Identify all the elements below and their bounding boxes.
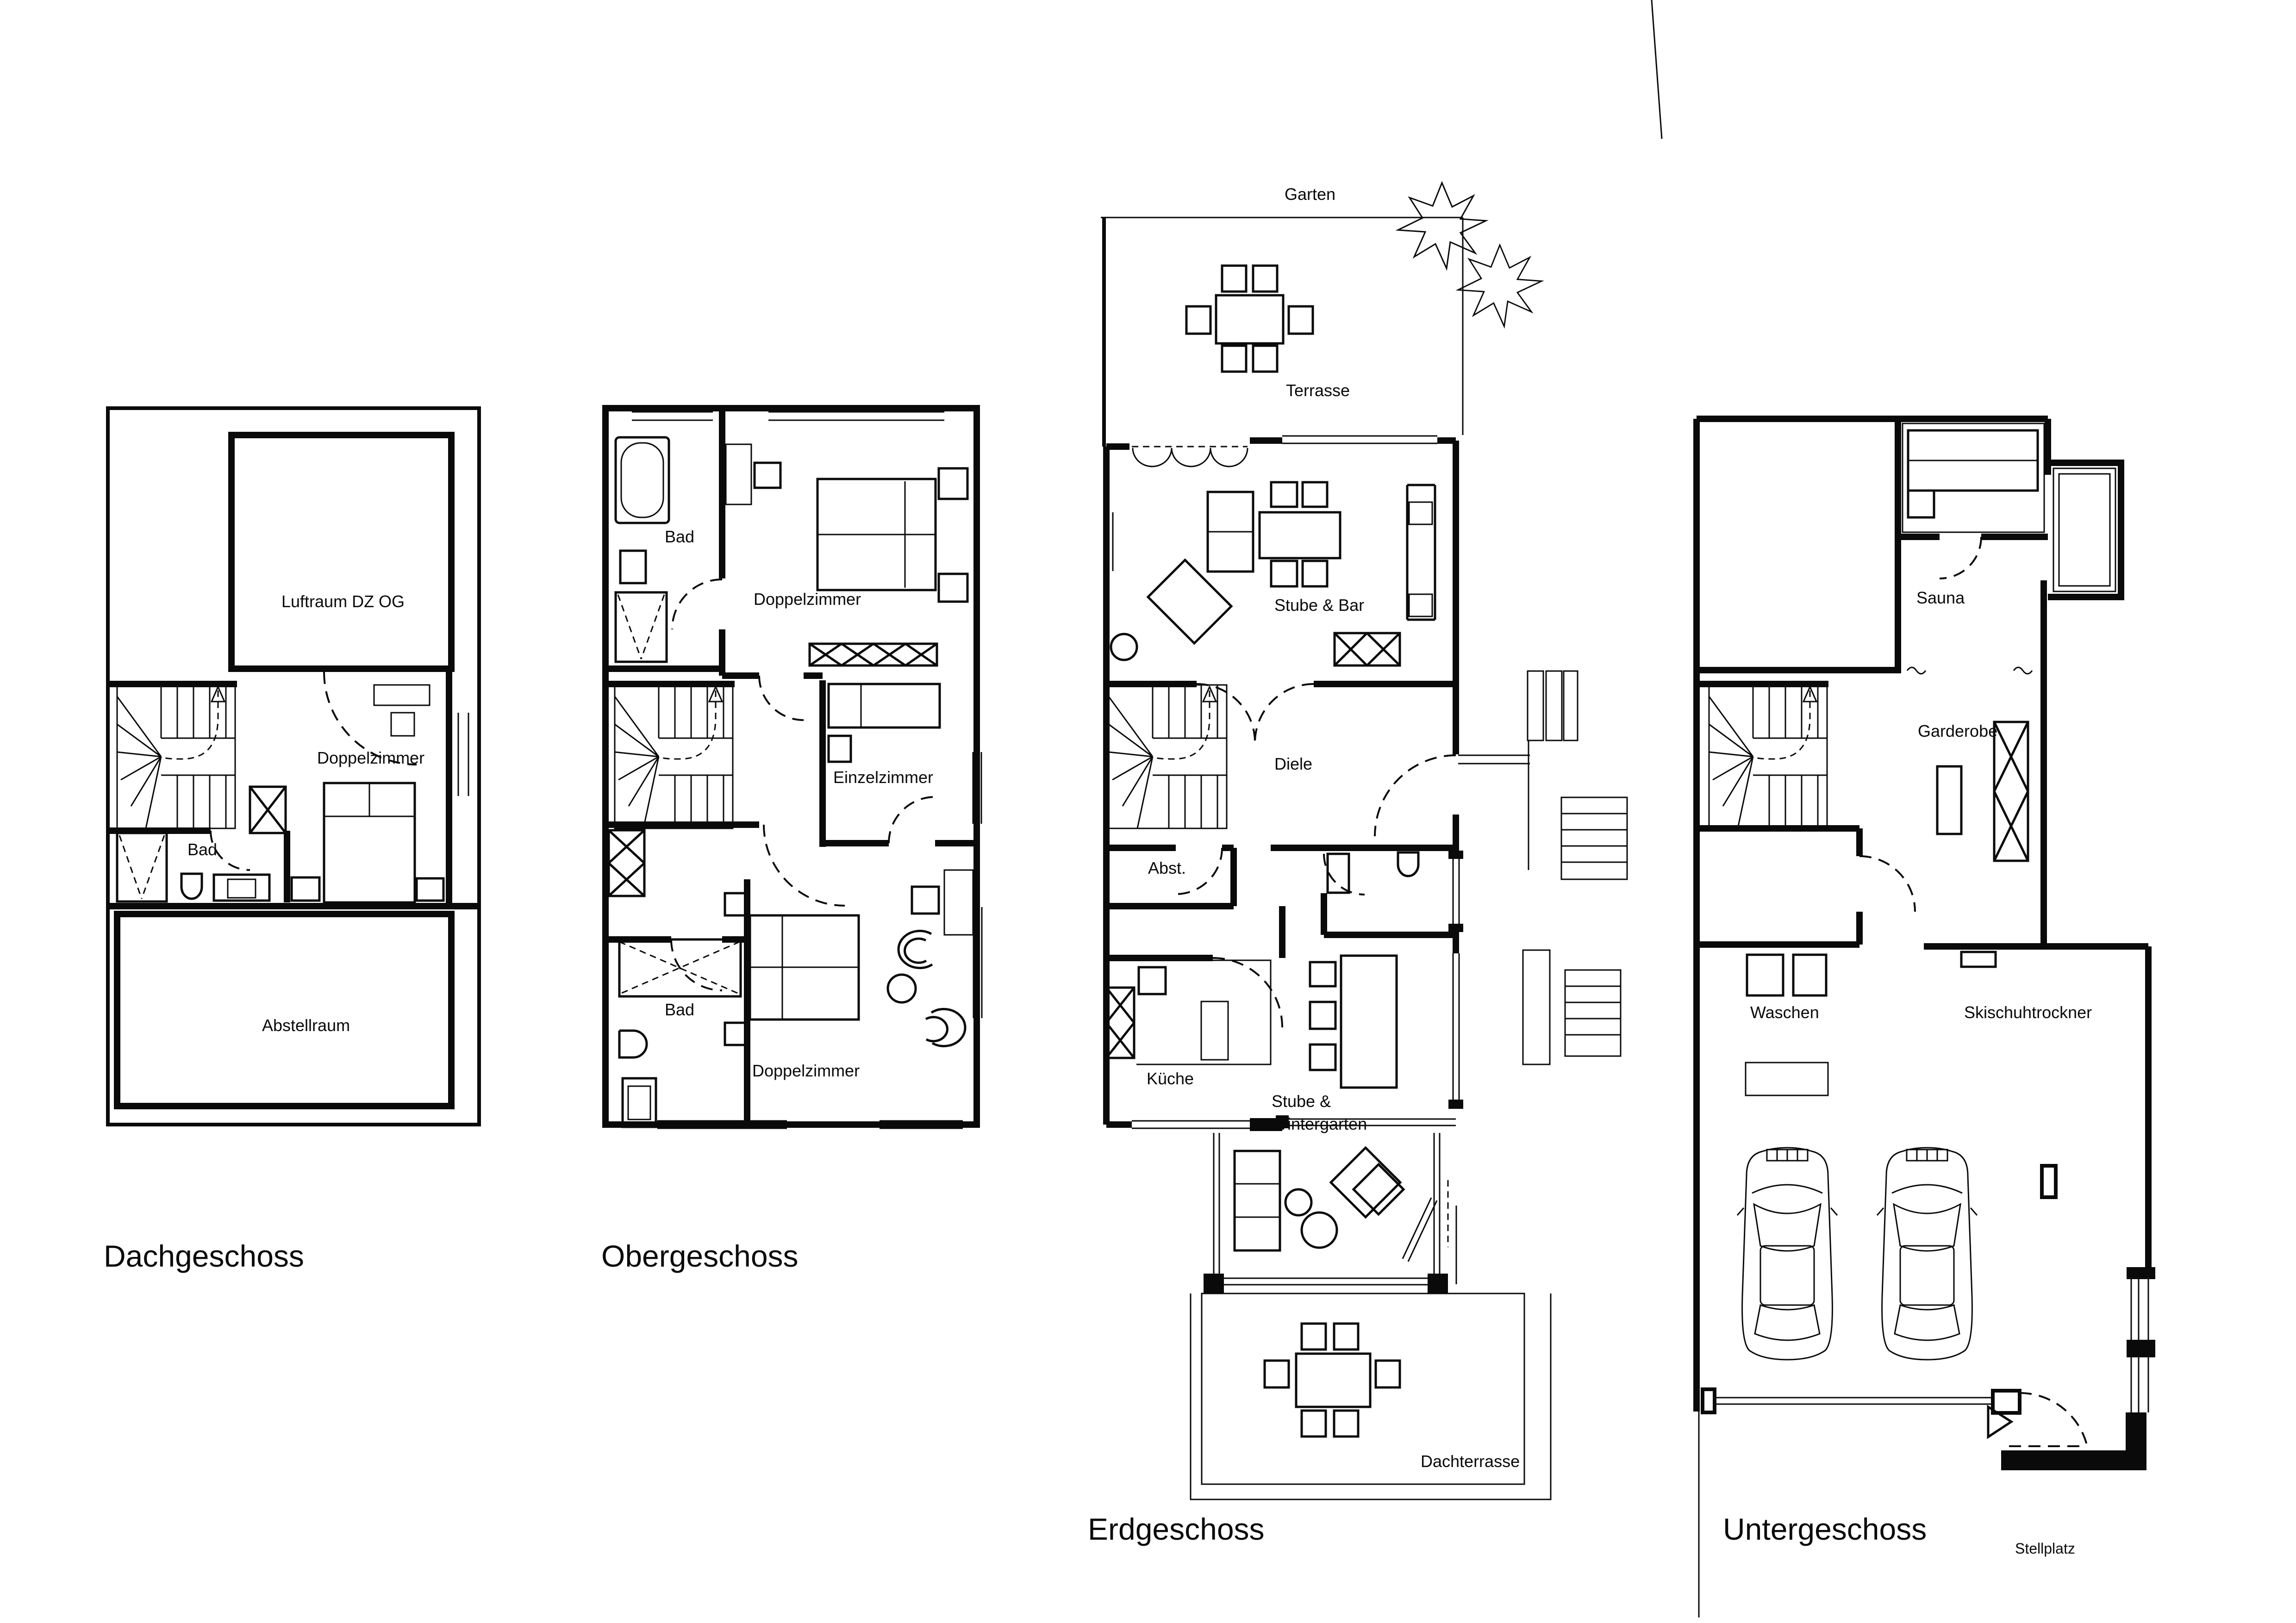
- room-label-dachterrasse: Dachterrasse: [1421, 1452, 1520, 1471]
- bench-icon: [1937, 766, 1961, 834]
- room-label-garten: Garten: [1285, 185, 1335, 204]
- toilet-icon: [1328, 852, 1418, 893]
- exterior-stairs-icon: [1523, 671, 1627, 1064]
- sideboard-icon: [1111, 560, 1231, 660]
- floor-title-dachgeschoss: Dachgeschoss: [104, 1239, 304, 1273]
- room-label-terrasse: Terrasse: [1286, 381, 1350, 400]
- shower-icon: [117, 833, 167, 902]
- stair-icon: [1709, 685, 1827, 828]
- room-label-bad-og1: Bad: [665, 527, 694, 546]
- room-label-bad-og2: Bad: [665, 1000, 694, 1019]
- floor-title-erdgeschoss: Erdgeschoss: [1088, 1512, 1265, 1546]
- room-label-abstellraum: Abstellraum: [262, 1016, 350, 1035]
- sink-icon: [214, 875, 269, 901]
- floor-plan-sheet: Luftraum DZ OG Doppelzimmer Bad Abstellr…: [0, 0, 2296, 1623]
- stair-icon: [117, 685, 235, 828]
- floor-title-untergeschoss: Untergeschoss: [1723, 1512, 1927, 1546]
- terrace-table-icon: [1186, 266, 1313, 372]
- shaft-icon: [250, 787, 286, 833]
- sink-icon: [620, 551, 646, 583]
- door-swing-icon: [759, 676, 804, 720]
- car-icon: [1877, 1148, 1977, 1360]
- sofa-icon: [1208, 492, 1253, 572]
- wardrobe-icon: [1994, 722, 2028, 861]
- room-label-einzelzimmer: Einzelzimmer: [833, 768, 933, 787]
- kitchen-icon: [1106, 960, 1271, 1064]
- terrace-table-icon: [1265, 1324, 1400, 1436]
- garden-boundary: [1101, 0, 1662, 447]
- sofa-icon: [1235, 1151, 1280, 1250]
- closet-icon: [609, 830, 644, 896]
- door-swing-icon: [889, 797, 935, 843]
- door-swing-icon: [1255, 684, 1314, 743]
- toilet-icon: [619, 1031, 647, 1057]
- room-label-skischuhtrockner: Skischuhtrockner: [1964, 1003, 2092, 1022]
- plan-obergeschoss: Bad Doppelzimmer Einzelzimmer Bad Doppel…: [601, 408, 982, 1273]
- wardrobe-icon: [810, 644, 937, 665]
- plan-erdgeschoss: Garten Terrasse Stube & Bar Diele Abst. …: [1088, 0, 1662, 1546]
- door-swing-icon: [1375, 755, 1456, 836]
- bar-counter-icon: [1407, 485, 1435, 620]
- door-swing-icon: [1940, 537, 1981, 578]
- room-label-stellplatz: Stellplatz: [2015, 1540, 2075, 1557]
- shower-icon: [616, 592, 667, 662]
- plan-dachgeschoss: Luftraum DZ OG Doppelzimmer Bad Abstellr…: [104, 408, 479, 1273]
- door-swing-icon: [1197, 684, 1255, 742]
- room-label-luftraum: Luftraum DZ OG: [281, 592, 405, 611]
- door-swing-icon: [1213, 958, 1282, 1027]
- room-label-sauna: Sauna: [1916, 588, 1965, 607]
- room-label-wintergarten-line2: Wintergarten: [1272, 1114, 1367, 1133]
- sauna-bench-icon: [1903, 423, 2044, 532]
- door-swing-icon: [672, 579, 722, 629]
- toilet-icon: [181, 874, 202, 899]
- armchair-icon: [888, 870, 973, 1046]
- door-swing-icon: [1324, 854, 1365, 895]
- dining-table-icon: [1260, 482, 1340, 586]
- erdgeschoss-walls: [1106, 436, 1530, 1131]
- desk-icon: [726, 444, 780, 504]
- door-swing-icon: [1859, 856, 1915, 912]
- door-swing-icon: [764, 825, 845, 906]
- tree-icon: [1398, 183, 1541, 326]
- sink-icon: [623, 1078, 656, 1127]
- room-label-stube-line1: Stube &: [1272, 1092, 1331, 1111]
- bed-icon: [817, 468, 967, 602]
- wardrobe-icon: [1335, 633, 1400, 665]
- room-label-abstellkammer: Abst.: [1148, 858, 1186, 877]
- room-label-bad-dg: Bad: [187, 840, 217, 859]
- floor-plan-drawing: Luftraum DZ OG Doppelzimmer Bad Abstellr…: [0, 0, 2296, 1623]
- stair-icon: [615, 685, 733, 828]
- room-label-doppelzimmer-og1: Doppelzimmer: [754, 590, 861, 609]
- floor-title-obergeschoss: Obergeschoss: [601, 1239, 799, 1273]
- bathtub-icon: [616, 437, 669, 523]
- wintergarten-table-icon: [1310, 956, 1397, 1088]
- washer-dryer-icon: [1746, 955, 1828, 1095]
- room-label-diele: Diele: [1274, 754, 1312, 773]
- armchair-icon: [1285, 1148, 1456, 1284]
- room-label-waschen: Waschen: [1750, 1003, 1819, 1022]
- room-label-doppelzimmer-og2: Doppelzimmer: [752, 1061, 860, 1080]
- plan-untergeschoss: Sauna Garderobe Waschen Skischuhtrockner…: [1697, 419, 2155, 1617]
- ski-boot-dryer-icon: [1961, 952, 2056, 1197]
- room-label-stube-bar: Stube & Bar: [1274, 596, 1364, 615]
- car-icon: [1737, 1148, 1837, 1360]
- stair-icon: [1109, 685, 1227, 828]
- room-label-doppelzimmer-dg: Doppelzimmer: [317, 748, 424, 767]
- bed-icon: [292, 685, 443, 902]
- room-label-kueche: Küche: [1147, 1069, 1194, 1088]
- room-label-garderobe: Garderobe: [1918, 721, 1997, 740]
- bed-icon: [829, 684, 940, 762]
